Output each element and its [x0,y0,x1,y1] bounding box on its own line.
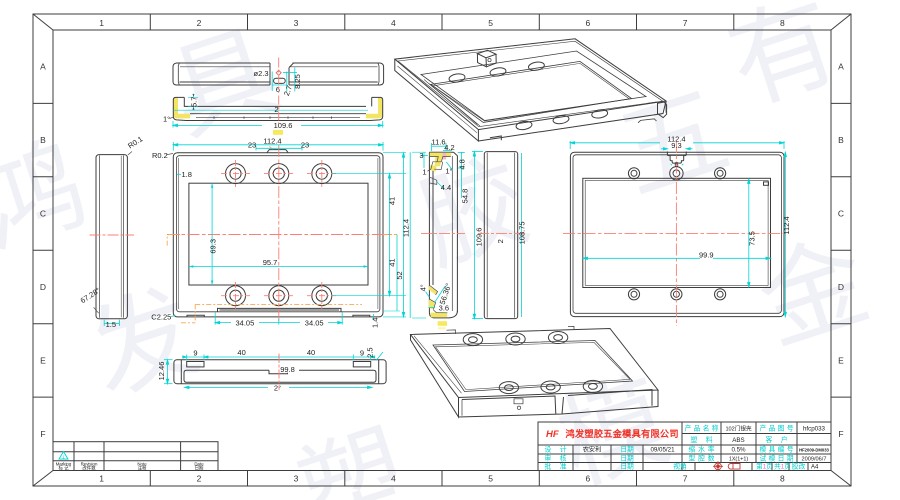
svg-text:鸿发塑胶五金模具有限公司: 鸿发塑胶五金模具有限公司 [566,428,679,439]
svg-text:102门银壳: 102门银壳 [725,425,752,433]
svg-text:1.4: 1.4 [371,318,380,328]
svg-text:5: 5 [488,18,493,28]
svg-text:2: 2 [197,18,202,28]
svg-text:99.8: 99.8 [280,365,295,374]
svg-text:C: C [838,209,844,219]
svg-text:0.5%: 0.5% [731,447,746,454]
svg-text:D: D [838,282,844,292]
svg-text:批 准: 批 准 [545,462,567,471]
svg-text:1°: 1° [163,115,170,124]
svg-text:日期: 日期 [620,463,634,471]
svg-text:视角: 视角 [673,462,687,471]
svg-text:B: B [40,135,46,145]
svg-text:A: A [838,62,844,72]
svg-text:23: 23 [301,141,309,150]
svg-text:2: 2 [274,105,278,114]
svg-text:6: 6 [674,160,678,169]
svg-text:4°: 4° [418,284,427,291]
svg-text:4: 4 [391,18,396,28]
svg-text:6: 6 [586,18,591,28]
svg-text:ABS: ABS [732,437,744,444]
svg-text:7: 7 [683,18,688,28]
svg-text:34.05: 34.05 [236,318,255,327]
svg-text:41: 41 [387,197,396,205]
svg-text:C2.25: C2.25 [151,313,171,322]
svg-text:F: F [838,429,843,439]
svg-text:109.6: 109.6 [274,121,293,130]
svg-text:2: 2 [496,239,505,243]
svg-text:改件数: 改件数 [82,465,96,472]
svg-text:99.9: 99.9 [699,250,714,259]
svg-text:112.4: 112.4 [401,219,410,237]
svg-text:52: 52 [395,271,404,279]
svg-text:塑 料: 塑 料 [691,435,713,444]
svg-text:1: 1 [99,474,104,484]
svg-text:ø2.3: ø2.3 [253,69,268,78]
svg-text:B: B [838,135,844,145]
svg-text:型腔数: 型腔数 [689,453,715,462]
svg-text:5: 5 [488,474,493,484]
svg-text:农安利: 农安利 [583,446,602,454]
svg-text:日期: 日期 [620,446,634,454]
svg-text:9.3: 9.3 [671,141,681,150]
svg-text:4.8: 4.8 [457,159,466,169]
svg-text:73.5: 73.5 [747,231,756,246]
svg-text:1.8: 1.8 [182,170,192,179]
svg-text:9: 9 [360,349,364,358]
svg-text:40: 40 [307,348,315,357]
svg-text:109.6: 109.6 [474,228,483,247]
svg-text:缩水率: 缩水率 [689,445,715,454]
svg-text:C: C [40,209,46,219]
svg-text:23: 23 [248,141,256,150]
svg-text:2°: 2° [274,384,281,393]
svg-text:2: 2 [197,474,202,484]
svg-text:2.5: 2.5 [366,347,375,357]
svg-text:95.7: 95.7 [263,258,278,267]
svg-text:设 计: 设 计 [545,445,567,454]
svg-text:3.6: 3.6 [439,303,449,312]
svg-text:9: 9 [193,349,197,358]
svg-text:8: 8 [780,474,785,484]
svg-text:1X(1+1): 1X(1+1) [729,456,749,462]
svg-text:09/05/21: 09/05/21 [650,447,675,454]
svg-text:客 户: 客 户 [766,435,788,444]
svg-text:hfcp033: hfcp033 [803,426,826,433]
svg-text:1: 1 [99,18,104,28]
svg-text:审 核: 审 核 [545,453,567,462]
svg-text:5.7: 5.7 [189,97,198,107]
svg-text:41: 41 [387,258,396,266]
svg-text:R0.2: R0.2 [152,151,168,160]
svg-text:HF: HF [546,429,559,440]
svg-text:40: 40 [237,348,245,357]
svg-text:1.5: 1.5 [106,320,116,329]
svg-text:112.4: 112.4 [782,216,791,234]
svg-text:6: 6 [586,474,591,484]
svg-text:8: 8 [780,18,785,28]
svg-text:6: 6 [276,85,280,94]
svg-text:4: 4 [391,474,396,484]
svg-text:A4: A4 [811,465,819,471]
svg-text:HF2009-DM033: HF2009-DM033 [799,448,829,453]
svg-text:3: 3 [294,474,299,484]
svg-text:3: 3 [419,151,423,160]
svg-text:E: E [838,355,844,365]
svg-text:2009/06/7: 2009/06/7 [802,456,827,462]
svg-text:A: A [40,62,46,72]
svg-text:69.3: 69.3 [209,239,218,254]
svg-text:E: E [40,355,46,365]
svg-text:日期: 日期 [620,454,634,462]
svg-text:12.46: 12.46 [157,362,166,381]
svg-text:注释: 注释 [138,465,147,472]
svg-text:34.05: 34.05 [305,318,324,327]
svg-text:8.25: 8.25 [293,74,302,89]
svg-text:108.75: 108.75 [518,221,527,244]
svg-text:54.8: 54.8 [460,189,469,204]
svg-text:标 记: 标 记 [58,465,69,472]
svg-text:7: 7 [683,474,688,484]
svg-text:D: D [40,282,46,292]
svg-text:112.4: 112.4 [263,137,281,146]
svg-text:1°: 1° [445,166,452,175]
svg-text:F: F [40,429,45,439]
svg-text:4.4: 4.4 [441,183,451,192]
svg-text:1: 1 [422,168,426,177]
svg-text:胶改: 胶改 [792,462,806,471]
svg-text:3: 3 [294,18,299,28]
svg-text:4.2: 4.2 [444,143,454,152]
